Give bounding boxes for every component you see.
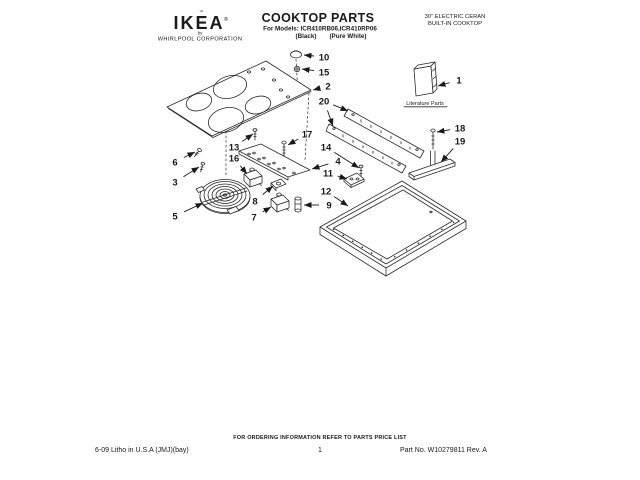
callout-13-leader-arrow	[242, 134, 253, 141]
footer-ordering-note: FOR ORDERING INFORMATION REFER TO PARTS …	[233, 435, 407, 441]
callout-1-number: 1	[456, 75, 462, 86]
part-screw-3	[199, 162, 205, 172]
callout-17-number: 17	[302, 129, 313, 140]
page-title: COOKTOP PARTS	[262, 11, 375, 25]
callout-6-leader-arrow	[184, 152, 195, 158]
callout-8-number: 8	[252, 196, 257, 207]
document-footer: FOR ORDERING INFORMATION REFER TO PARTS …	[95, 435, 487, 454]
part-glass-cooktop	[167, 61, 311, 138]
callout-7-number: 7	[251, 212, 256, 223]
exploded-parts-diagram: ™ IKEA ® by WHIRLPOOL CORPORATION COOKTO…	[0, 0, 640, 480]
callout-14-number: 14	[321, 142, 332, 153]
part-nut	[294, 66, 299, 71]
callout-18-number: 18	[455, 123, 466, 134]
callout-12-number: 12	[321, 186, 332, 197]
literature-parts-label: Literature Parts	[406, 101, 444, 107]
part-switch-16	[244, 168, 262, 187]
part-clip-8	[271, 179, 286, 191]
callout-20-leader-arrow	[327, 110, 333, 126]
callout-10-leader-arrow	[304, 55, 314, 56]
part-screw-13	[253, 129, 257, 140]
part-spacer-9	[295, 197, 301, 212]
document-header: ™ IKEA ® by WHIRLPOOL CORPORATION COOKTO…	[158, 9, 486, 43]
part-screw-17	[282, 141, 286, 156]
callout-20-number: 20	[319, 96, 330, 107]
part-screw-18	[431, 129, 435, 149]
callout-15-leader-arrow	[302, 69, 314, 71]
callout-9-number: 9	[326, 200, 331, 211]
parts-catalog-page: ™ IKEA ® by WHIRLPOOL CORPORATION COOKTO…	[0, 0, 640, 480]
callout-5-number: 5	[172, 211, 178, 222]
callout-2-number: 2	[325, 81, 330, 92]
brand-reg-mark: ®	[224, 16, 228, 23]
product-type-line1: 30" ELECTRIC CERAN	[425, 14, 486, 20]
callout-10-number: 10	[319, 52, 330, 63]
callout-8-leader-arrow	[263, 186, 273, 195]
callout-6-number: 6	[172, 157, 177, 168]
callout-3-leader-arrow	[184, 167, 200, 177]
callout-5-leader-arrow	[184, 203, 203, 212]
footer-part-number: Part No. W10279811 Rev. A	[400, 447, 487, 454]
color-variant-black: (Black)	[296, 33, 317, 40]
part-mounting-cap	[291, 51, 302, 58]
callout-1-leader-arrow	[438, 83, 449, 86]
part-trim-rails	[326, 109, 424, 173]
part-switch-7	[271, 193, 289, 212]
footer-litho-info: 6-09 Litho in U.S.A (JMJ)(bay)	[95, 447, 189, 454]
callout-11-leader-arrow	[338, 176, 348, 179]
footer-page-number: 1	[318, 447, 322, 454]
part-burner-box-pan	[320, 181, 466, 276]
callout-7-leader-arrow	[263, 207, 271, 212]
callout-17-leader-arrow	[288, 139, 298, 145]
callout-4-number: 4	[335, 156, 341, 167]
part-coil-element	[196, 180, 250, 215]
product-type-line2: BUILT-IN COOKTOP	[428, 21, 482, 27]
callout-11-number: 11	[323, 168, 334, 179]
callout-3-number: 3	[172, 177, 177, 188]
exploded-view-artwork: Literature Parts	[167, 51, 466, 276]
brand-byline: by	[198, 31, 203, 36]
color-variant-white: (Pure White)	[329, 33, 366, 40]
part-literature-booklet	[414, 62, 437, 96]
callout-20-leader-arrow	[333, 105, 348, 111]
brand-company: WHIRLPOOL CORPORATION	[158, 37, 243, 43]
callout-19-number: 19	[455, 136, 466, 147]
callout-13-number: 13	[229, 142, 240, 153]
models-line: For Models: ICR410RB06,ICR410RP06	[263, 26, 377, 33]
callout-12-leader-arrow	[334, 197, 348, 206]
callout-18-leader-arrow	[437, 130, 450, 132]
callout-2-leader-arrow	[313, 89, 318, 90]
callout-15-number: 15	[319, 67, 330, 78]
callout-16-number: 16	[229, 153, 240, 164]
callout-16-leader-arrow	[240, 166, 247, 174]
ikea-whirlpool-logo: ™ IKEA ® by WHIRLPOOL CORPORATION	[158, 9, 243, 43]
